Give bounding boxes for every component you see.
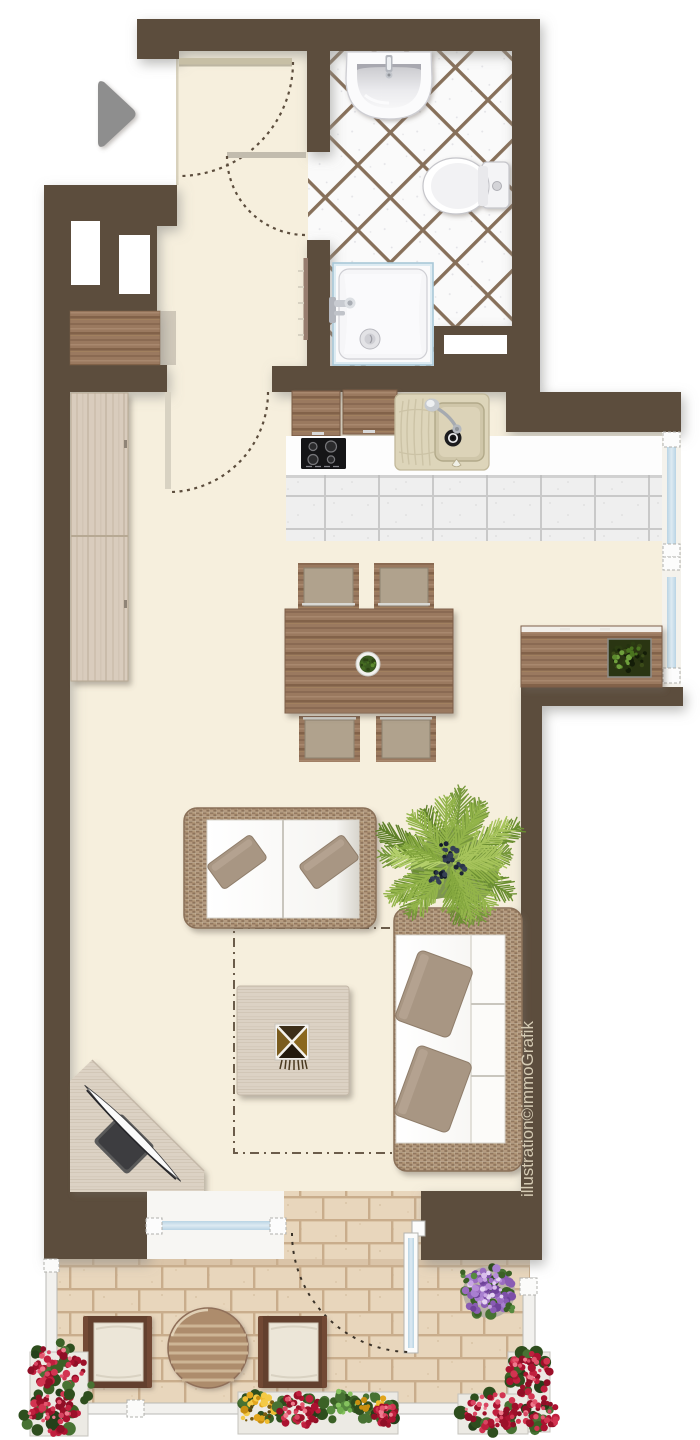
svg-text:illustration©immoGrafik: illustration©immoGrafik [518, 1021, 537, 1197]
